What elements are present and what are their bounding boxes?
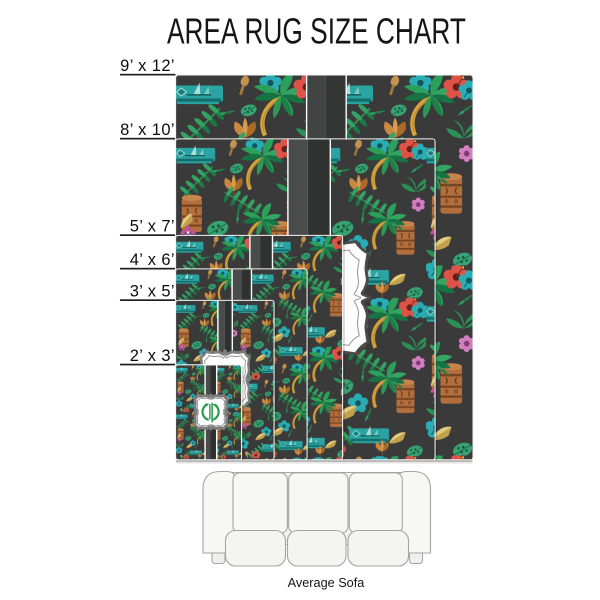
svg-text:Average Sofa: Average Sofa (288, 576, 366, 590)
svg-text:9’ x 12’: 9’ x 12’ (120, 57, 175, 75)
svg-text:3’ x 5’: 3’ x 5’ (130, 282, 175, 300)
svg-text:8’ x 10’: 8’ x 10’ (120, 121, 175, 139)
svg-text:5’ x 7’: 5’ x 7’ (130, 217, 175, 235)
svg-text:4’ x 6’: 4’ x 6’ (130, 251, 175, 269)
svg-text:2’ x 3’: 2’ x 3’ (130, 347, 175, 365)
svg-text:AREA RUG SIZE CHART: AREA RUG SIZE CHART (167, 11, 466, 52)
